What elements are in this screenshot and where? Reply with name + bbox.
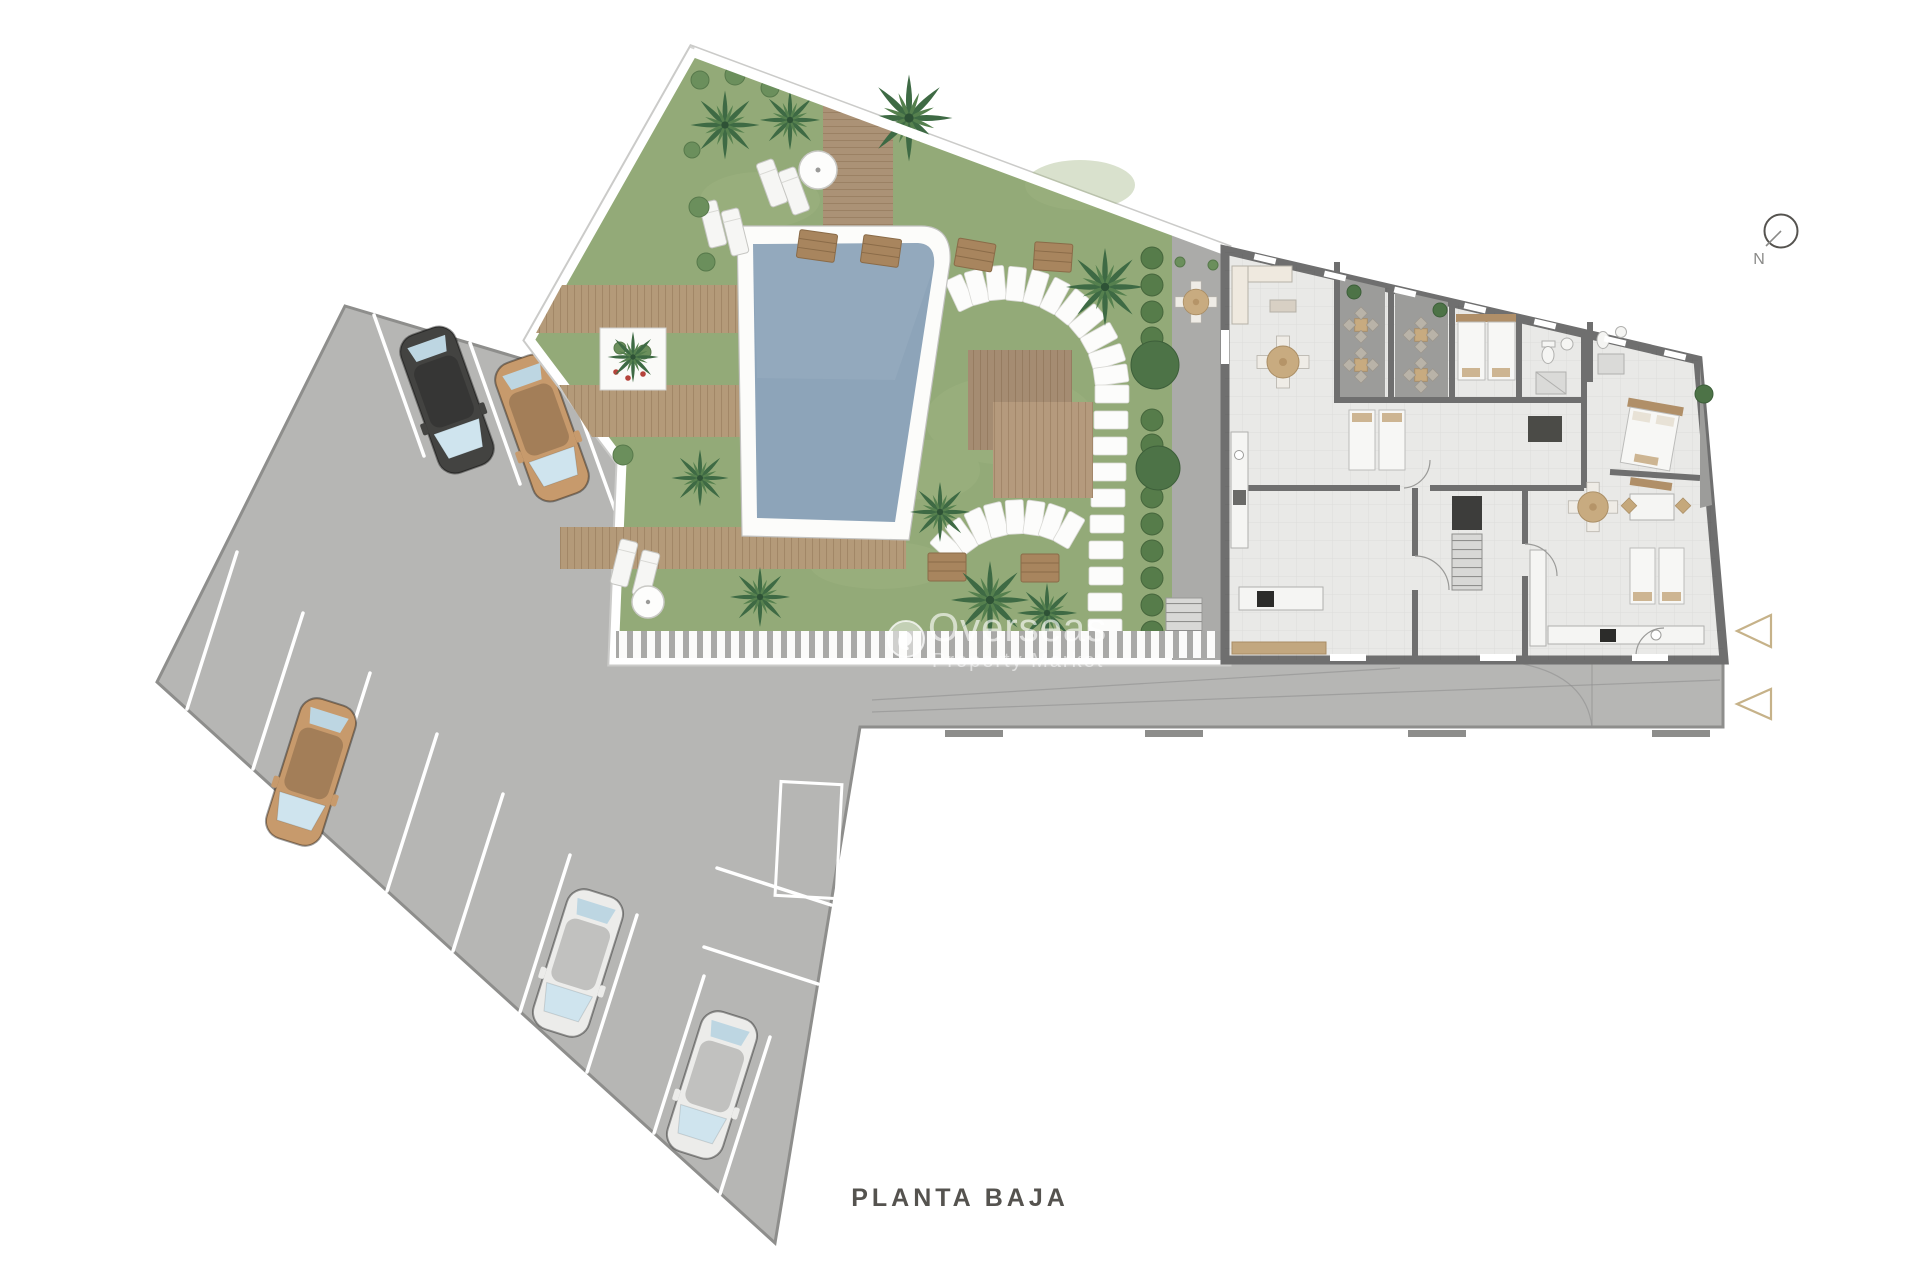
watermark-text-2: Property Market	[932, 650, 1104, 673]
floor-plan-page: PLANTA BAJA N Overseas Property Market	[0, 0, 1920, 1280]
garden-area	[530, 52, 1225, 660]
hedge-row	[1141, 247, 1163, 643]
entrance-markers	[1737, 615, 1771, 719]
watermark-logo-icon	[888, 621, 924, 657]
compass-label: N	[1746, 251, 1772, 269]
north-compass-icon	[1765, 215, 1798, 248]
apartment-building	[1221, 250, 1724, 661]
parasol-icon	[799, 151, 837, 189]
entry-triangle-icon-1	[1737, 615, 1771, 647]
watermark-text-1: Overseas	[928, 606, 1107, 651]
plan-title: PLANTA BAJA	[820, 1184, 1100, 1213]
elevator	[1452, 496, 1482, 530]
parasol-icon-2	[632, 586, 664, 618]
entrance-patio	[1131, 230, 1228, 660]
entry-triangle-icon-2	[1737, 689, 1771, 719]
